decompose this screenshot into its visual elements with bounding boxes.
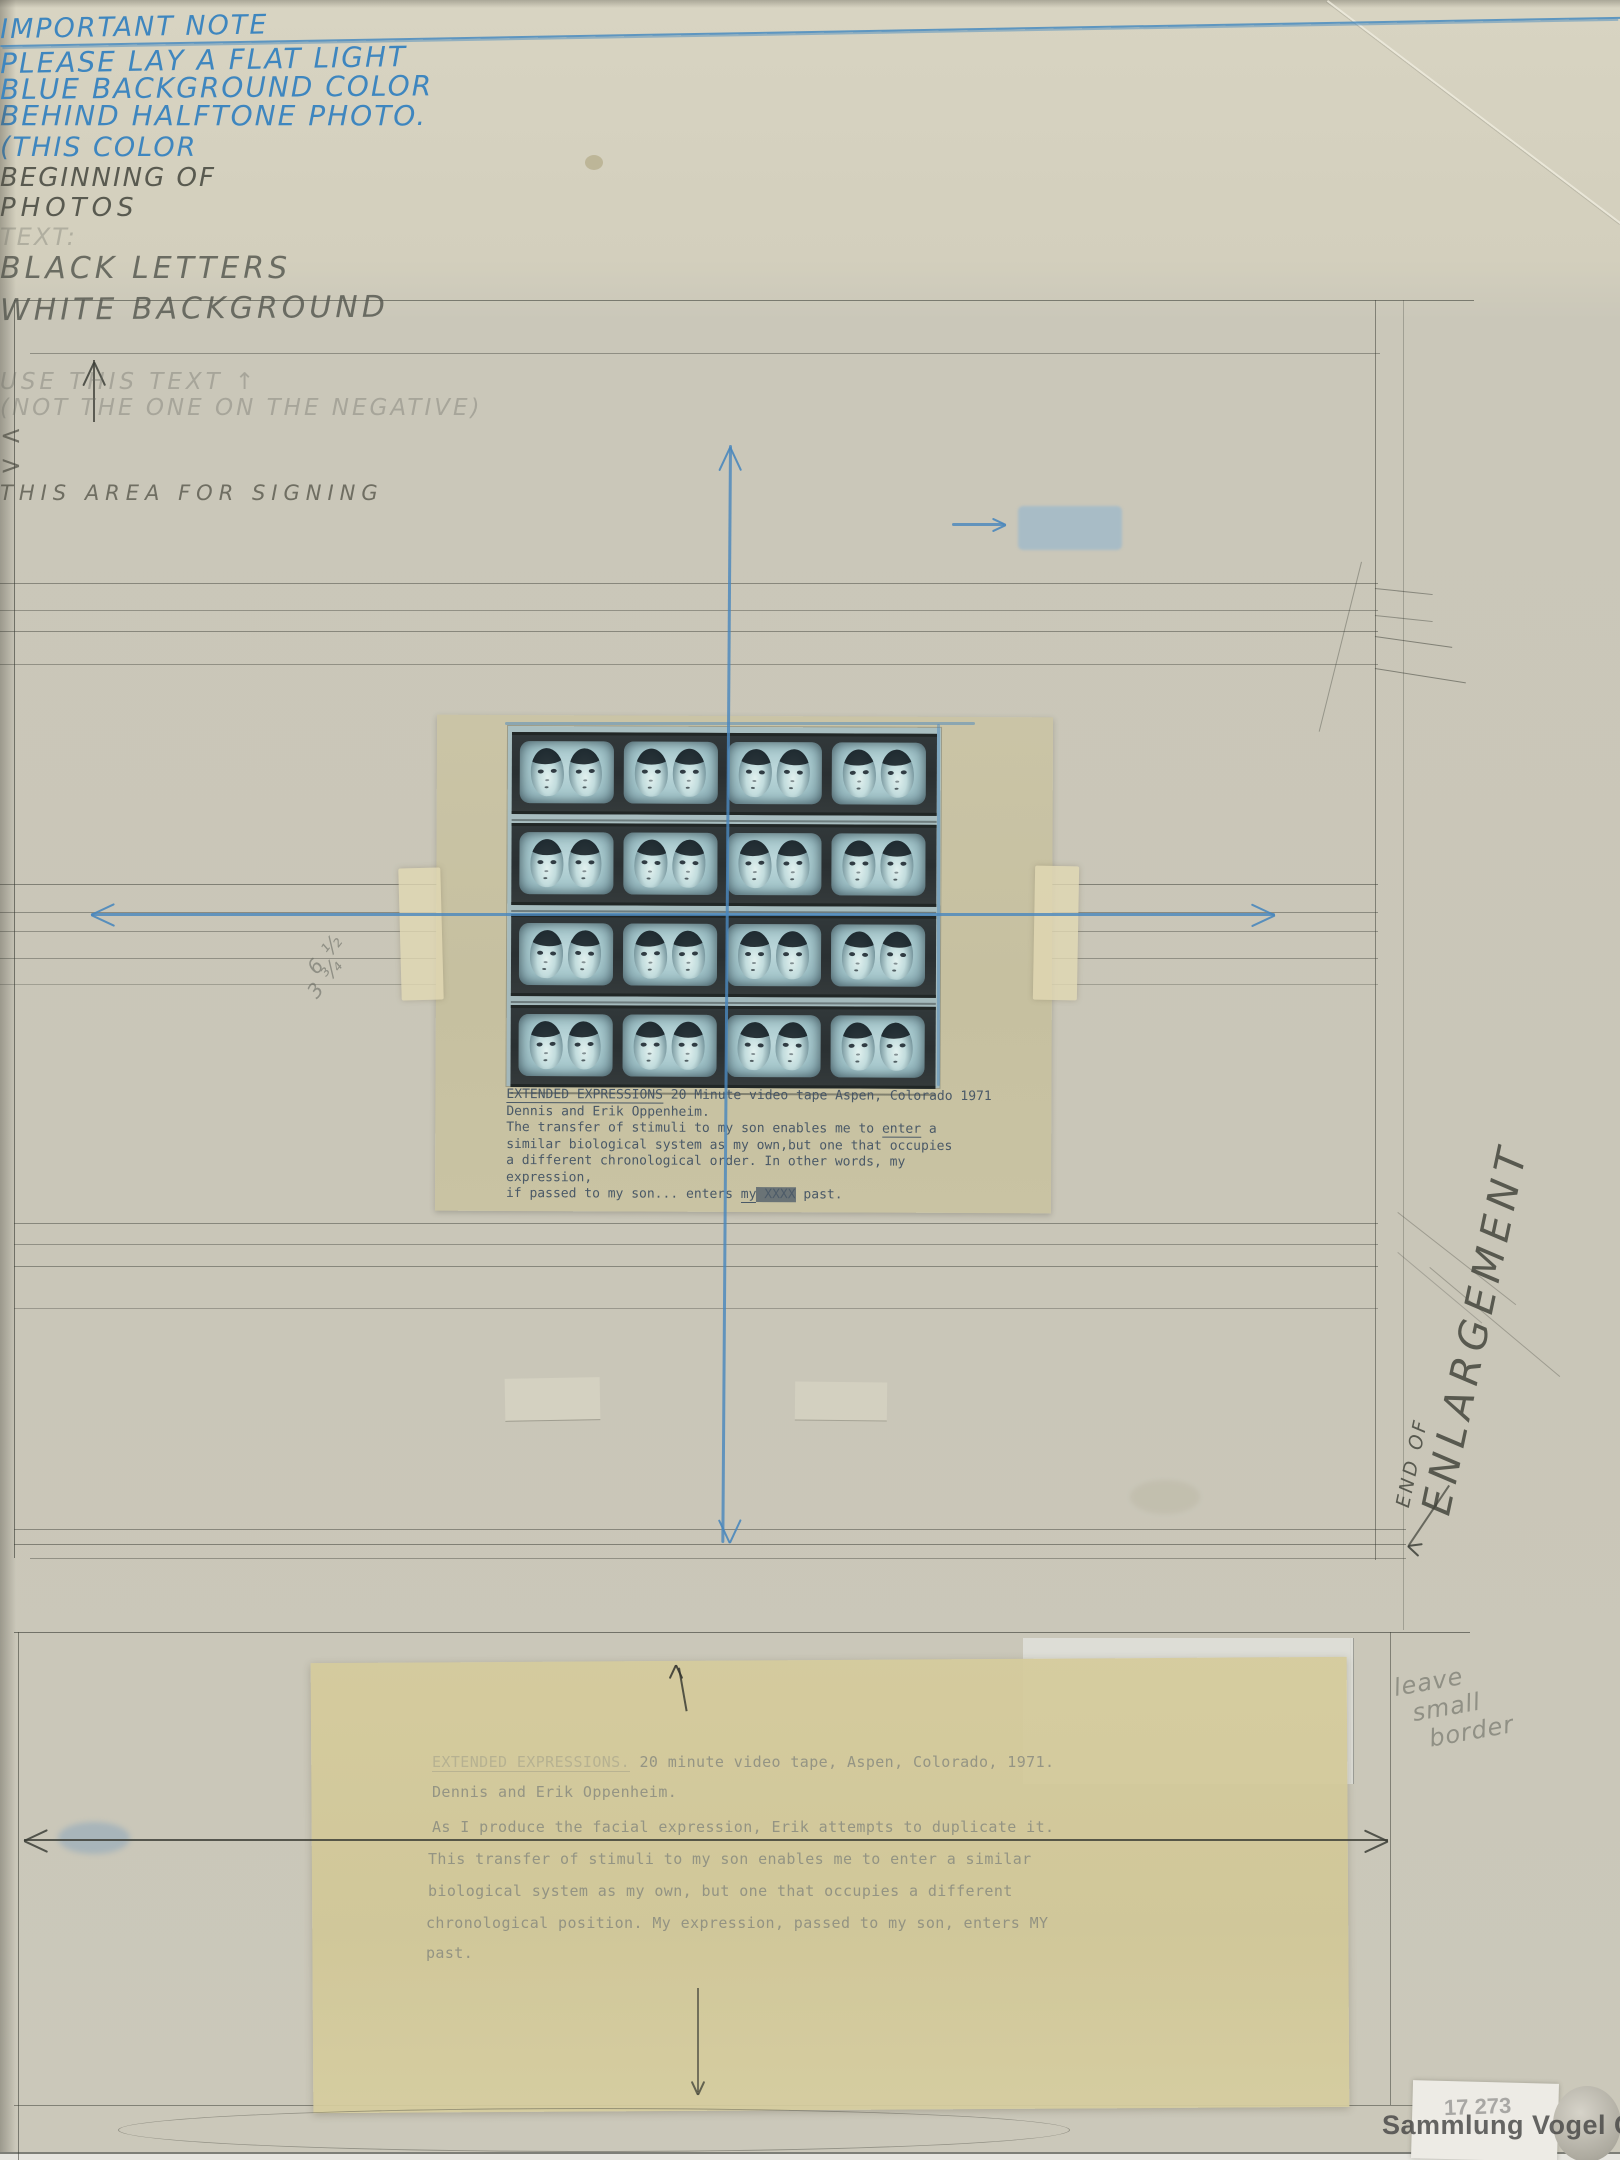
down-arrow-shaft: [697, 1988, 699, 2092]
face-portrait: [568, 839, 601, 887]
filmstrip-frame: [727, 1015, 821, 1077]
erased-tape-spot: [795, 1382, 887, 1422]
pencil-guide-line: [0, 583, 1378, 584]
paper-stain: [585, 155, 603, 170]
caption-line: The transfer of stimuli to my son enable…: [506, 1120, 996, 1139]
filmstrip-frame: [832, 742, 926, 804]
erased-tape-spot: [505, 1377, 601, 1422]
pencil-guide-line: [1390, 1632, 1391, 2105]
filmstrip-row: [511, 823, 936, 907]
face-portrait: [671, 930, 706, 980]
beginning-of-photos-note: BEGINNING OF: [0, 163, 1620, 193]
face-portrait: [567, 1021, 602, 1071]
blue-swatch-arrow-shaft: [952, 523, 1004, 526]
face-portrait: [737, 839, 772, 889]
face-portrait: [737, 748, 773, 798]
photo-caption: EXTENDED EXPRESSIONS 20 Minute video tap…: [506, 1087, 996, 1205]
filmstrip-row: [511, 914, 936, 998]
filmstrip-frame: [519, 832, 613, 894]
face-portrait: [635, 749, 668, 797]
important-note-line: (THIS COLOR: [0, 132, 1620, 163]
face-portrait: [529, 929, 565, 979]
filmstrip-frame: [831, 833, 925, 895]
caption-line: a different chronological order. In othe…: [506, 1153, 996, 1188]
signing-area-outline: [118, 2108, 1070, 2152]
collection-watermark: Sammlung Vogel C&C: [1382, 2110, 1620, 2141]
face-portrait: [774, 1021, 810, 1071]
photo-mount-sheet: EXTENDED EXPRESSIONS 20 Minute video tap…: [435, 715, 1053, 1214]
typed-statement-line: Dennis and Erik Oppenheim.: [432, 1778, 677, 1808]
face-portrait: [841, 1022, 876, 1072]
face-portrait: [673, 749, 706, 797]
typed-statement-line: chronological position. My expression, p…: [426, 1909, 1048, 1939]
face-portrait: [775, 748, 811, 798]
filmstrip-frame: [520, 741, 614, 803]
pencil-guide-line: [0, 610, 1378, 611]
tape-piece-right: [1033, 866, 1079, 1001]
pencil-guide-line: [0, 2152, 1620, 2154]
filmstrip-row: [512, 732, 937, 816]
blue-color-swatch: [1018, 506, 1122, 550]
signing-arrow-left: <: [0, 421, 1620, 451]
face-portrait: [841, 931, 877, 981]
pencil-guide-line: [14, 300, 15, 1558]
blue-crosshair-horizontal-line: [91, 913, 1275, 916]
pencil-guide-line: [30, 1558, 1406, 1559]
pencil-guide-line: [1403, 300, 1404, 1630]
margin-note: leave small border: [1392, 1655, 1517, 1757]
face-portrait: [529, 1020, 564, 1070]
face-portrait: [530, 747, 565, 797]
artwork-photograph: EXTENDED EXPRESSIONS. 20 minute video ta…: [0, 0, 1620, 2160]
pencil-guide-line: [14, 1244, 1378, 1245]
face-portrait: [736, 1021, 772, 1071]
blue-smudge: [58, 1822, 130, 1854]
filmstrip-frame: [519, 1014, 613, 1076]
typed-statement-line: This transfer of stimuli to my son enabl…: [428, 1845, 1032, 1875]
caption-line: EXTENDED EXPRESSIONS 20 Minute video tap…: [506, 1087, 996, 1106]
filmstrip-frame: [728, 742, 822, 804]
face-portrait: [879, 931, 915, 981]
face-portrait: [633, 930, 668, 980]
face-portrait: [672, 1022, 705, 1070]
filmstrip-frame: [831, 1015, 925, 1077]
signing-arrow-right: >: [0, 451, 1620, 481]
filmstrip-row: [510, 1005, 935, 1089]
end-of-enlargement-note: END OF ENLARGEMENT: [1392, 1133, 1538, 1519]
pencil-guide-line: [14, 1308, 1378, 1309]
beginning-of-photos-note: PHOTOS: [0, 193, 1620, 223]
filmstrip-frame: [727, 833, 821, 895]
face-portrait: [634, 1022, 667, 1070]
filmstrip-frame: [519, 923, 613, 985]
face-portrait: [776, 931, 809, 979]
face-portrait: [568, 748, 603, 798]
face-portrait: [880, 749, 915, 799]
halftone-filmstrip-photo: [506, 726, 941, 1088]
blue-photo-right-edge-line: [937, 724, 940, 1086]
pencil-guide-line: [14, 1632, 1470, 1633]
face-portrait: [530, 839, 563, 887]
text-spec-prefix: TEXT:: [0, 223, 1620, 251]
pencil-guide-line: [1375, 668, 1466, 684]
pencil-guide-line: [14, 1544, 1406, 1545]
pencil-guide-line: [0, 631, 1378, 632]
face-portrait: [738, 931, 771, 979]
face-portrait: [842, 749, 877, 799]
pencil-guide-line: [14, 1529, 1406, 1530]
use-this-text-note: USE THIS TEXT ↑: [0, 369, 1620, 395]
pencil-guide-line: [30, 353, 1380, 354]
signing-area-label: THIS AREA FOR SIGNING: [0, 481, 1620, 505]
typed-statement-line: biological system as my own, but one tha…: [428, 1877, 1013, 1907]
face-portrait: [842, 840, 875, 888]
width-arrow-shaft: [24, 1839, 1388, 1841]
pencil-guide-line: [18, 1632, 19, 2160]
use-this-text-note: (NOT THE ONE ON THE NEGATIVE): [0, 395, 1620, 421]
pencil-guide-line: [0, 664, 1378, 665]
face-portrait: [633, 839, 669, 889]
filmstrip-frame: [727, 924, 821, 986]
paper-stain: [1130, 1480, 1200, 1514]
pencil-guide-line: [1375, 300, 1376, 1560]
filmstrip-frame: [624, 741, 718, 803]
caption-line: if passed to my son... enters my XXXX pa…: [506, 1186, 996, 1205]
face-portrait: [880, 841, 913, 889]
pencil-guide-line: [14, 1223, 1378, 1224]
filmstrip-frame: [623, 1014, 717, 1076]
face-portrait: [879, 1022, 914, 1072]
typed-statement-line: EXTENDED EXPRESSIONS. 20 minute video ta…: [432, 1748, 1054, 1778]
filmstrip-frame: [623, 832, 717, 894]
face-portrait: [775, 839, 810, 889]
blue-photo-top-edge-line: [505, 722, 975, 725]
pencil-guide-line: [14, 1266, 1378, 1267]
typed-title: EXTENDED EXPRESSIONS.: [432, 1753, 630, 1772]
typed-statement-line: past.: [426, 1939, 473, 1969]
pencil-guide-line: [1375, 636, 1452, 648]
filmstrip-frame: [831, 924, 925, 986]
face-portrait: [567, 929, 603, 979]
filmstrip-frame: [623, 923, 717, 985]
face-portrait: [671, 839, 707, 889]
pencil-guide-line: [1319, 562, 1362, 732]
